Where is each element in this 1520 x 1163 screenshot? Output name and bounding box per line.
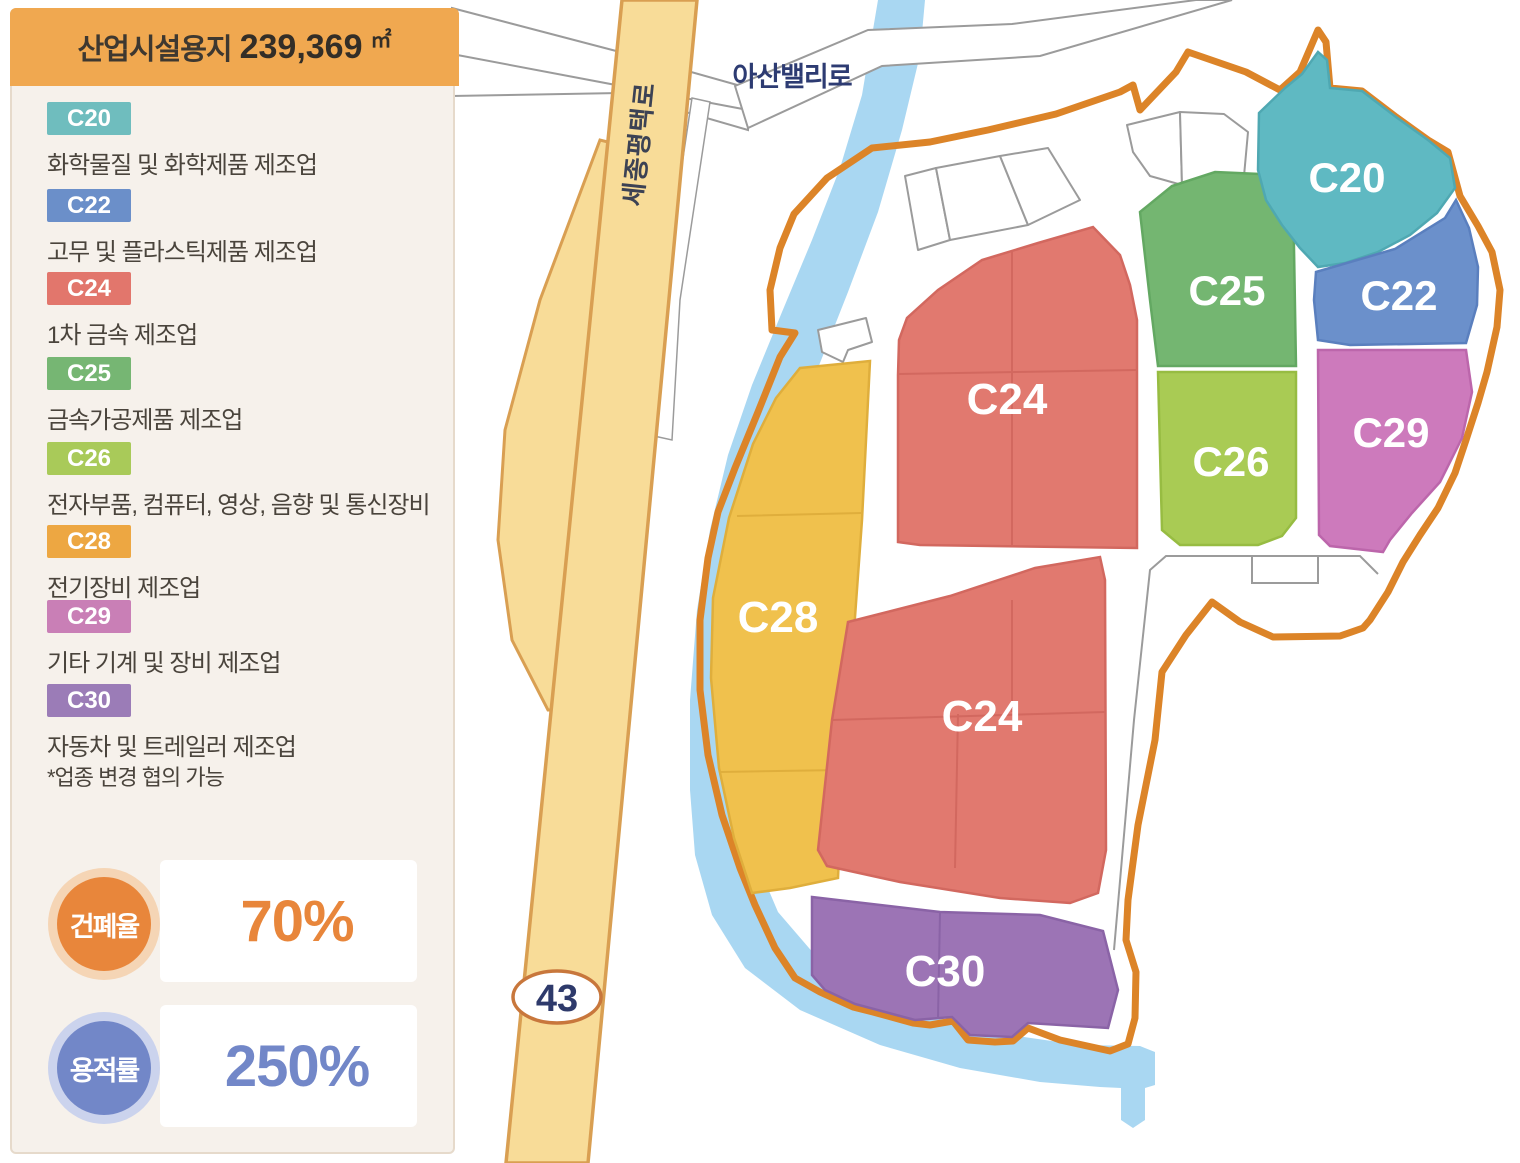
legend-item-c26: C26 전자부품, 컴퓨터, 영상, 음향 및 통신장비 (47, 442, 447, 520)
legend-desc-c20: 화학물질 및 화학제품 제조업 (47, 145, 447, 180)
legend-desc-c29: 기타 기계 및 장비 제조업 (47, 643, 447, 678)
legend-item-c30: C30 자동차 및 트레일러 제조업 (47, 684, 447, 762)
zone-label-c25: C25 (1188, 267, 1265, 314)
legend-desc-c24: 1차 금속 제조업 (47, 315, 447, 350)
legend-desc-c30: 자동차 및 트레일러 제조업 (47, 727, 447, 762)
stat-value-coverage: 70% (177, 860, 417, 982)
legend-desc-c25: 금속가공제품 제조업 (47, 400, 447, 435)
legend-chip-c30: C30 (47, 684, 131, 717)
legend-item-c25: C25 금속가공제품 제조업 (47, 357, 447, 435)
legend-panel: 산업시설용지 239,369 ㎡ C20 화학물질 및 화학제품 제조업 C22… (10, 8, 455, 1154)
zone-label-c24-south: C24 (942, 692, 1023, 741)
legend-desc-c28: 전기장비 제조업 (47, 568, 447, 603)
panel-area-unit: ㎡ (371, 24, 392, 54)
zone-label-c20: C20 (1308, 154, 1385, 201)
legend-item-c24: C24 1차 금속 제조업 (47, 272, 447, 350)
legend-chip-c25: C25 (47, 357, 131, 390)
stat-badge-coverage-label: 건폐율 (57, 877, 151, 971)
stat-badge-far: 용적률 (48, 1012, 160, 1124)
zone-label-c26: C26 (1192, 438, 1269, 485)
zone-label-c29: C29 (1352, 409, 1429, 456)
panel-header: 산업시설용지 239,369 ㎡ (10, 8, 459, 86)
panel-area-value: 239,369 (240, 28, 363, 67)
legend-desc-c26: 전자부품, 컴퓨터, 영상, 음향 및 통신장비 (47, 485, 447, 520)
stat-badge-coverage: 건폐율 (48, 868, 160, 980)
road-label-asanvalley: 아산밸리로 (732, 62, 851, 92)
legend-note: *업종 변경 협의 가능 (47, 760, 224, 792)
zone-label-c22: C22 (1360, 272, 1437, 319)
legend-item-c29: C29 기타 기계 및 장비 제조업 (47, 600, 447, 678)
route-badge-number: 43 (536, 978, 578, 1020)
legend-chip-c29: C29 (47, 600, 131, 633)
parcel-southeast-notch (1252, 556, 1318, 583)
legend-chip-c20: C20 (47, 102, 131, 135)
legend-chip-c24: C24 (47, 272, 131, 305)
stat-badge-far-label: 용적률 (57, 1021, 151, 1115)
infographic-canvas: C24 C24 C28 C30 C25 C26 C20 C22 C29 아산밸리… (0, 0, 1520, 1163)
legend-item-c28: C28 전기장비 제조업 (47, 525, 447, 603)
zone-label-c24-north: C24 (967, 375, 1048, 424)
legend-chip-c22: C22 (47, 189, 131, 222)
stat-value-far: 250% (177, 1005, 417, 1127)
legend-item-c20: C20 화학물질 및 화학제품 제조업 (47, 102, 447, 180)
zone-label-c28: C28 (738, 593, 819, 642)
zone-label-c30: C30 (905, 947, 986, 996)
legend-chip-c28: C28 (47, 525, 131, 558)
panel-title: 산업시설용지 (78, 26, 232, 68)
legend-desc-c22: 고무 및 플라스틱제품 제조업 (47, 232, 447, 267)
legend-chip-c26: C26 (47, 442, 131, 475)
legend-item-c22: C22 고무 및 플라스틱제품 제조업 (47, 189, 447, 267)
